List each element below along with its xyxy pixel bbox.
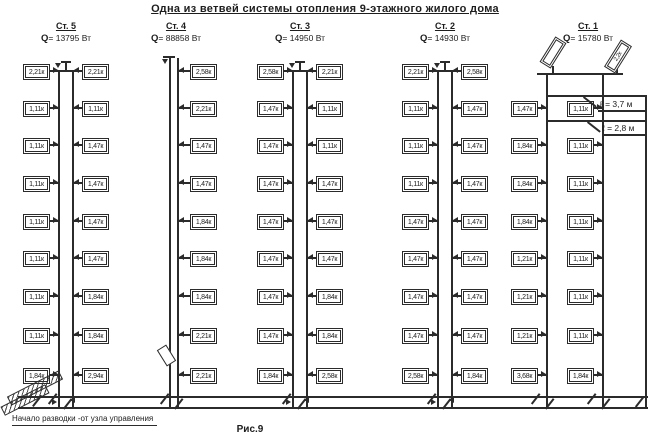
junction-arrow-icon (308, 254, 313, 260)
junction-arrow-icon (287, 67, 292, 73)
radiator: 1,11к (23, 289, 50, 305)
riser-heat-load: Q= 14950 Вт (250, 33, 350, 44)
radiator: 1,21к (511, 328, 538, 344)
radiator-value: 1,84к (513, 216, 536, 228)
radiator: 1,11к (23, 101, 50, 117)
radiator-value: 1,47к (318, 216, 341, 228)
radiator-value: 1,47к (259, 103, 282, 115)
junction-arrow-icon (597, 141, 602, 147)
valve-slash (531, 393, 540, 404)
radiator-value: 1,47к (463, 216, 486, 228)
radiator: 1,47к (82, 214, 109, 230)
radiator: 1,11к (567, 251, 594, 267)
connection-pipe (547, 95, 646, 97)
q-value: = 15780 Вт (570, 33, 613, 43)
radiator: 1,11к (567, 176, 594, 192)
junction-arrow-icon (453, 67, 458, 73)
radiator: 1,84к (82, 328, 109, 344)
riser-pipe (546, 74, 548, 408)
riser-pipe (58, 70, 60, 408)
radiator: 1,11к (402, 101, 429, 117)
radiator: 1,47к (190, 138, 217, 154)
radiator: 1,11к (23, 176, 50, 192)
junction-arrow-icon (541, 217, 546, 223)
radiator: 1,11к (316, 101, 343, 117)
radiator-value: 1,47к (192, 178, 215, 190)
radiator-value: 1,84к (318, 330, 341, 342)
junction-arrow-icon (162, 59, 168, 64)
radiator: 1,47к (402, 214, 429, 230)
junction-arrow-icon (179, 254, 184, 260)
radiator: 1,84к (511, 214, 538, 230)
riser-cap (163, 56, 175, 58)
radiator-value: 1,47к (84, 140, 107, 152)
radiator-value: 2,58к (192, 66, 215, 78)
junction-arrow-icon (308, 371, 313, 377)
radiator-value: 2,94к (84, 370, 107, 382)
junction-arrow-icon (179, 331, 184, 337)
radiator-value: 2,21к (192, 370, 215, 382)
junction-arrow-icon (597, 331, 602, 337)
radiator-value: 1,47к (463, 291, 486, 303)
radiator: 1,84к (511, 176, 538, 192)
radiator-value: 1,47к (259, 291, 282, 303)
radiator: 1,47к (82, 176, 109, 192)
radiator-value: 1,21к (513, 330, 536, 342)
figure-caption: Рис.9 (195, 424, 305, 435)
radiator: 2,58к (461, 64, 488, 80)
radiator-value: 1,11к (404, 103, 427, 115)
junction-arrow-icon (308, 331, 313, 337)
radiator-value: 1,11к (25, 253, 48, 265)
radiator: 1,47к (82, 138, 109, 154)
riser-pipe (292, 70, 294, 408)
radiator: 2,21к (316, 64, 343, 80)
main-pipe-supply (18, 396, 648, 398)
radiator: 1,47к (257, 138, 284, 154)
junction-arrow-icon (453, 141, 458, 147)
junction-arrow-icon (179, 292, 184, 298)
radiator: 1,11к (23, 251, 50, 267)
radiator: 2,21к (23, 64, 50, 80)
radiator: 2,21к (402, 64, 429, 80)
pipe-line (537, 73, 623, 75)
junction-arrow-icon (287, 217, 292, 223)
radiator: 2,21к (190, 328, 217, 344)
pipe-line (65, 63, 67, 72)
radiator: 2,21к (190, 368, 217, 384)
radiator-value: 1,84к (569, 370, 592, 382)
junction-arrow-icon (453, 254, 458, 260)
radiator: 1,21к (511, 289, 538, 305)
junction-arrow-icon (597, 371, 602, 377)
junction-arrow-icon (179, 141, 184, 147)
riser-name: Ст. 2 (405, 21, 485, 31)
junction-arrow-icon (179, 371, 184, 377)
junction-arrow-icon (541, 292, 546, 298)
radiator-value: 1,47к (404, 253, 427, 265)
radiator-value: 1,11к (404, 178, 427, 190)
radiator: 1,21к (511, 251, 538, 267)
radiator: 1,11к (82, 101, 109, 117)
radiator: 1,84к (190, 214, 217, 230)
radiator-value: 1,47к (513, 103, 536, 115)
radiator: 1,47к (257, 289, 284, 305)
q-value: = 13795 Вт (48, 33, 91, 43)
junction-arrow-icon (74, 254, 79, 260)
pipe-line (299, 63, 301, 72)
riser-heat-load: Q= 13795 Вт (16, 33, 116, 44)
radiator: 1,47к (402, 251, 429, 267)
radiator-value: 1,11к (569, 216, 592, 228)
radiator: 3,68к (511, 368, 538, 384)
radiator-value: 1,11к (404, 140, 427, 152)
length-callout-2: ℓ = 2,8 м (602, 123, 634, 133)
radiator-value: 2,58к (259, 66, 282, 78)
radiator: 1,11к (567, 214, 594, 230)
radiator: 1,11к (23, 214, 50, 230)
radiator-value: 1,47к (463, 253, 486, 265)
junction-arrow-icon (287, 331, 292, 337)
radiator: 1,84к (190, 251, 217, 267)
riser-heat-load: Q= 14930 Вт (395, 33, 495, 44)
figure-title: Одна из ветвей системы отопления 9-этажн… (0, 3, 650, 15)
junction-arrow-icon (286, 399, 291, 405)
radiator-value: 1,11к (569, 291, 592, 303)
junction-arrow-icon (453, 331, 458, 337)
radiator: 1,11к (23, 328, 50, 344)
radiator-value: 2,58к (404, 370, 427, 382)
junction-arrow-icon (53, 292, 58, 298)
junction-arrow-icon (597, 292, 602, 298)
junction-arrow-icon (308, 67, 313, 73)
radiator: 1,47к (190, 176, 217, 192)
riser-pipe (306, 70, 308, 408)
radiator-value: 2,58к (463, 66, 486, 78)
riser-pipe (177, 58, 179, 408)
radiator-value: 1,21к (513, 253, 536, 265)
junction-arrow-icon (53, 331, 58, 337)
junction-arrow-icon (308, 217, 313, 223)
junction-arrow-icon (53, 141, 58, 147)
radiator: 2,58к (257, 64, 284, 80)
junction-arrow-icon (432, 331, 437, 337)
junction-arrow-icon (179, 179, 184, 185)
radiator-value: 1,11к (318, 140, 341, 152)
junction-arrow-icon (541, 371, 546, 377)
radiator-value: 3,68к (513, 370, 536, 382)
radiator-value: 1,11к (25, 216, 48, 228)
radiator: 1,47к (461, 176, 488, 192)
valve-slash (587, 393, 596, 404)
radiator: 1,47к (257, 251, 284, 267)
radiator: 1,47к (461, 138, 488, 154)
radiator: 1,11к (23, 138, 50, 154)
riser-pipe (72, 70, 74, 408)
radiator: 1,47к (316, 214, 343, 230)
radiator-value: 1,11к (84, 103, 107, 115)
junction-arrow-icon (432, 292, 437, 298)
radiator-value: 1,47к (259, 140, 282, 152)
radiator-value: 1,47к (463, 178, 486, 190)
junction-arrow-icon (432, 67, 437, 73)
radiator-value: 2,21к (192, 103, 215, 115)
radiator-value: 1,47к (84, 178, 107, 190)
radiator: 1,84к (567, 368, 594, 384)
radiator-value: 2,21к (404, 66, 427, 78)
radiator-value: 1,47к (463, 103, 486, 115)
radiator-value: 1,11к (569, 330, 592, 342)
junction-arrow-icon (74, 331, 79, 337)
callout-underline (598, 110, 646, 112)
radiator: 1,47к (257, 176, 284, 192)
junction-arrow-icon (179, 104, 184, 110)
junction-arrow-icon (53, 217, 58, 223)
riser-pipe (451, 70, 453, 408)
radiator: 2,58к (316, 368, 343, 384)
radiator: 1,47к (316, 251, 343, 267)
radiator: 1,47к (461, 289, 488, 305)
junction-arrow-icon (74, 179, 79, 185)
radiator-value: 1,47к (84, 216, 107, 228)
radiator: 1,47к (257, 101, 284, 117)
junction-arrow-icon (432, 254, 437, 260)
junction-arrow-icon (179, 217, 184, 223)
radiator-value: 1,47к (259, 330, 282, 342)
radiator-value: 1,47к (404, 291, 427, 303)
radiator-value: 1,84к (259, 370, 282, 382)
radiator-value: 1,84к (192, 216, 215, 228)
radiator: 2,94к (82, 368, 109, 384)
distribution-start-note: Начало разводки -от узла управления (12, 414, 157, 426)
heating-scheme-figure: Одна из ветвей системы отопления 9-этажн… (0, 0, 650, 448)
junction-arrow-icon (179, 67, 184, 73)
junction-arrow-icon (308, 179, 313, 185)
radiator-value: 1,11к (25, 103, 48, 115)
radiator: 1,84к (511, 138, 538, 154)
junction-arrow-icon (304, 397, 309, 403)
radiator: 1,47к (316, 176, 343, 192)
radiator: 2,58к (402, 368, 429, 384)
junction-arrow-icon (308, 141, 313, 147)
junction-arrow-icon (541, 254, 546, 260)
valve-slash (160, 393, 169, 404)
q-value: = 14930 Вт (427, 33, 470, 43)
radiator-value: 2,21к (318, 66, 341, 78)
radiator-value: 1,47к (404, 330, 427, 342)
junction-arrow-icon (74, 141, 79, 147)
radiator-value: 1,11к (569, 140, 592, 152)
junction-arrow-icon (449, 397, 454, 403)
radiator: 2,21к (190, 101, 217, 117)
radiator: 1,47к (82, 251, 109, 267)
main-pipe-return (18, 407, 648, 409)
radiator: 2,21к (82, 64, 109, 80)
riser-name: Ст. 5 (26, 21, 106, 31)
junction-arrow-icon (308, 292, 313, 298)
radiator: 1,84к (82, 289, 109, 305)
radiator-value: 1,47к (192, 140, 215, 152)
radiator-value: 1,84к (192, 253, 215, 265)
radiator-value: 2,21к (84, 66, 107, 78)
radiator-value: 1,47к (259, 178, 282, 190)
radiator-value: 1,11к (569, 253, 592, 265)
pipe-line (552, 66, 554, 74)
radiator-value: 1,21к (513, 291, 536, 303)
radiator-value: 1,84к (463, 370, 486, 382)
junction-arrow-icon (453, 217, 458, 223)
radiator-value: 1,84к (513, 140, 536, 152)
junction-arrow-icon (541, 141, 546, 147)
radiator: 1,47к (461, 101, 488, 117)
radiator-value: 2,21к (192, 330, 215, 342)
radiator-value: 1,84к (84, 291, 107, 303)
riser-name: Ст. 4 (136, 21, 216, 31)
radiator-value: 1,84к (513, 178, 536, 190)
radiator-value: 1,11к (25, 291, 48, 303)
junction-arrow-icon (597, 179, 602, 185)
q-value: = 14950 Вт (282, 33, 325, 43)
junction-arrow-icon (432, 217, 437, 223)
radiator: 1,47к (402, 289, 429, 305)
radiator: 1,47к (461, 328, 488, 344)
junction-arrow-icon (287, 179, 292, 185)
junction-arrow-icon (53, 67, 58, 73)
junction-arrow-icon (597, 254, 602, 260)
radiator-value: 1,47к (318, 253, 341, 265)
riser-name: Ст. 3 (260, 21, 340, 31)
valve-slash (635, 396, 644, 407)
radiator-value: 1,47к (84, 253, 107, 265)
radiator-value: 1,47к (318, 178, 341, 190)
pipe-section-tag (157, 345, 176, 367)
return-pipe (645, 95, 647, 408)
junction-arrow-icon (432, 371, 437, 377)
junction-arrow-icon (74, 371, 79, 377)
riser-heat-load: Q= 88858 Вт (126, 33, 226, 44)
junction-arrow-icon (432, 104, 437, 110)
junction-arrow-icon (597, 217, 602, 223)
radiator-value: 1,47к (404, 216, 427, 228)
junction-arrow-icon (74, 217, 79, 223)
junction-arrow-icon (53, 254, 58, 260)
radiator-value: 2,58к (318, 370, 341, 382)
junction-arrow-icon (287, 141, 292, 147)
radiator-value: 1,84к (318, 291, 341, 303)
radiator-value: 1,11к (25, 178, 48, 190)
connection-pipe (547, 120, 646, 122)
junction-arrow-icon (308, 104, 313, 110)
radiator: 1,47к (461, 251, 488, 267)
pipe-line (444, 63, 446, 72)
radiator-value: 1,47к (259, 253, 282, 265)
radiator: 1,84к (257, 368, 284, 384)
radiator-value: 1,47к (463, 330, 486, 342)
radiator-value: 1,11к (318, 103, 341, 115)
radiator-value: 1,11к (25, 330, 48, 342)
slanted-radiator: 2,2к (604, 39, 632, 73)
q-value: = 88858 Вт (158, 33, 201, 43)
callout-leader (587, 121, 601, 132)
junction-arrow-icon (74, 104, 79, 110)
junction-arrow-icon (541, 331, 546, 337)
junction-arrow-icon (74, 67, 79, 73)
callout-underline (602, 134, 646, 136)
radiator: 1,84к (461, 368, 488, 384)
radiator-value: 2,2к (607, 42, 629, 71)
radiator: 1,11к (567, 289, 594, 305)
junction-arrow-icon (287, 104, 292, 110)
radiator: 1,47к (257, 214, 284, 230)
radiator-value: 2,21к (25, 66, 48, 78)
radiator: 1,47к (257, 328, 284, 344)
junction-arrow-icon (287, 371, 292, 377)
junction-arrow-icon (453, 292, 458, 298)
junction-arrow-icon (432, 141, 437, 147)
junction-arrow-icon (541, 179, 546, 185)
junction-arrow-icon (74, 292, 79, 298)
radiator: 2,58к (190, 64, 217, 80)
radiator-value: 1,11к (569, 178, 592, 190)
junction-arrow-icon (453, 371, 458, 377)
radiator: 1,47к (402, 328, 429, 344)
radiator-value: 1,84к (84, 330, 107, 342)
radiator: 1,84к (316, 289, 343, 305)
junction-arrow-icon (453, 104, 458, 110)
radiator: 1,11к (316, 138, 343, 154)
radiator: 1,84к (190, 289, 217, 305)
radiator: 1,84к (316, 328, 343, 344)
radiator: 1,47к (511, 101, 538, 117)
radiator: 1,11к (402, 138, 429, 154)
junction-arrow-icon (53, 104, 58, 110)
radiator-value: 1,11к (569, 103, 592, 115)
junction-arrow-icon (453, 179, 458, 185)
radiator-value: 1,47к (259, 216, 282, 228)
junction-arrow-icon (431, 399, 436, 405)
junction-arrow-icon (53, 179, 58, 185)
radiator-value: 1,11к (25, 140, 48, 152)
length-callout-1: ℓ = 3,7 м (600, 99, 632, 109)
junction-arrow-icon (287, 254, 292, 260)
riser-pipe (437, 70, 439, 408)
junction-arrow-icon (541, 104, 546, 110)
junction-arrow-icon (70, 397, 75, 403)
radiator: 1,11к (402, 176, 429, 192)
junction-arrow-icon (287, 292, 292, 298)
radiator: 1,11к (567, 328, 594, 344)
junction-arrow-icon (52, 399, 57, 405)
riser-name: Ст. 1 (548, 21, 628, 31)
radiator-value: 1,84к (192, 291, 215, 303)
radiator: 1,11к (567, 138, 594, 154)
radiator: 1,47к (461, 214, 488, 230)
radiator-value: 1,47к (463, 140, 486, 152)
junction-arrow-icon (432, 179, 437, 185)
